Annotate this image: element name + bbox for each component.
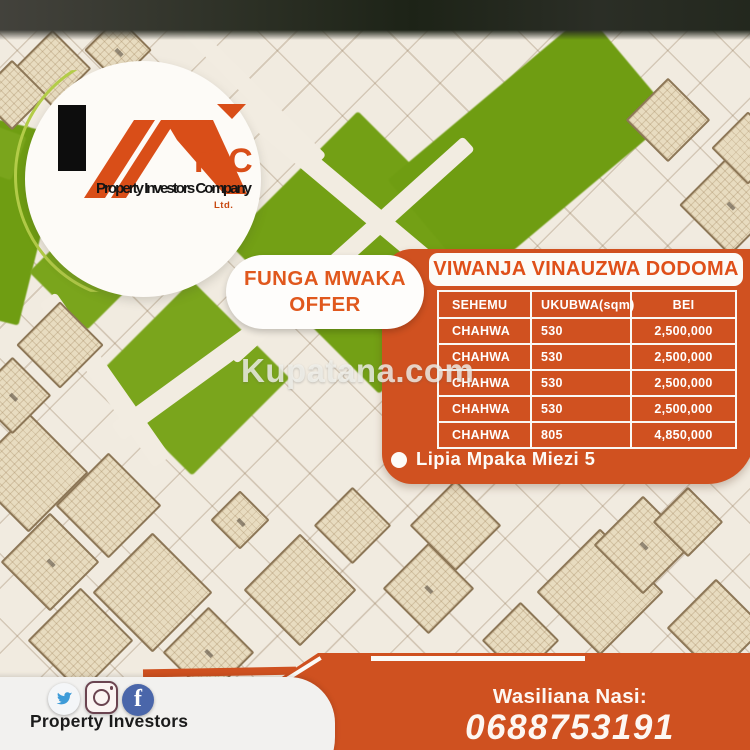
price-table: SEHEMUUKUBWA(sqm)BEI CHAHWA5302,500,000C… [437, 290, 737, 449]
table-cell: CHAHWA [438, 422, 531, 448]
footer-white-line [371, 656, 585, 661]
contact-label: Wasiliana Nasi: [420, 685, 720, 709]
footer-brand-name: Property Investors [30, 711, 188, 732]
offer-badge: FUNGA MWAKA OFFER [226, 255, 424, 329]
flyer: PIC Property Investors Company Ltd. FUNG… [0, 0, 750, 750]
panel-title: VIWANJA VINAUZWA DODOMA [429, 253, 743, 286]
logo-company-text: Property Investors Company [96, 180, 253, 197]
column-header: SEHEMU [438, 291, 531, 318]
price-table-body: CHAHWA5302,500,000CHAHWA5302,500,000CHAH… [438, 318, 736, 448]
table-cell: 530 [531, 344, 631, 370]
offer-badge-line2: OFFER [226, 292, 424, 318]
table-row: CHAHWA5302,500,000 [438, 344, 736, 370]
table-header-row: SEHEMUUKUBWA(sqm)BEI [438, 291, 736, 318]
instagram-icon [85, 681, 118, 714]
map-parcel [313, 486, 391, 564]
table-cell: CHAHWA [438, 318, 531, 344]
column-header: UKUBWA(sqm) [531, 291, 631, 318]
table-row: CHAHWA5302,500,000 [438, 370, 736, 396]
logo-roof-tip-icon [217, 104, 246, 119]
table-cell: 2,500,000 [631, 370, 736, 396]
table-cell: 530 [531, 318, 631, 344]
pic-logo: PIC Property Investors Company Ltd. [54, 100, 254, 214]
table-cell: 2,500,000 [631, 318, 736, 344]
logo-black-bar [58, 105, 86, 171]
table-cell: 2,500,000 [631, 344, 736, 370]
payment-note: Lipia Mpaka Miezi 5 [416, 448, 595, 470]
phone-number: 0688753191 [420, 710, 720, 746]
table-row: CHAHWA8054,850,000 [438, 422, 736, 448]
table-cell: 530 [531, 396, 631, 422]
contact-block: Wasiliana Nasi: 0688753191 [420, 685, 720, 746]
table-row: CHAHWA5302,500,000 [438, 318, 736, 344]
table-cell: 4,850,000 [631, 422, 736, 448]
logo-ltd-text: Ltd. [214, 200, 233, 211]
price-table-head: SEHEMUUKUBWA(sqm)BEI [438, 291, 736, 318]
bullet-dot-icon [391, 452, 407, 468]
table-cell: 530 [531, 370, 631, 396]
table-row: CHAHWA5302,500,000 [438, 396, 736, 422]
table-cell: 805 [531, 422, 631, 448]
logo-pic-text: PIC [194, 142, 254, 180]
watermark: Kupatana.com [241, 352, 474, 390]
offer-badge-line1: FUNGA MWAKA [226, 266, 424, 292]
top-letterbox-bar [0, 0, 750, 40]
map-parcel [210, 490, 269, 549]
table-cell: 2,500,000 [631, 396, 736, 422]
table-cell: CHAHWA [438, 396, 531, 422]
column-header: BEI [631, 291, 736, 318]
